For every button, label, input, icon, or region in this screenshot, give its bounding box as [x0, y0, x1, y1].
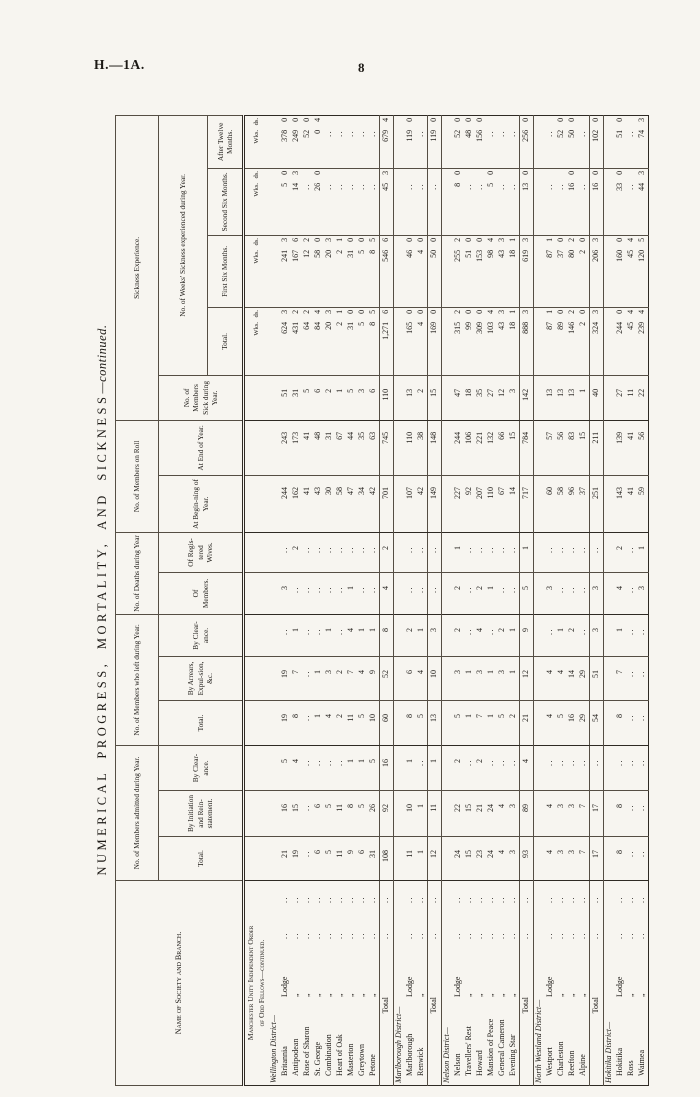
name-suffix [592, 939, 601, 997]
data-cell: 500 [567, 115, 578, 168]
lodge-row: Ross„....................414111454454...… [626, 115, 637, 1085]
data-cell: .. [637, 837, 649, 881]
header-members-sick: No. of Members Sick during Year. [159, 375, 244, 420]
data-cell: 7 [475, 700, 486, 745]
data-cell: 1205 [637, 235, 649, 307]
data-cell: .. [556, 572, 567, 614]
data-cell: 22 [637, 375, 649, 420]
data-cell: 26 [368, 791, 380, 837]
data-cell: 211 [590, 420, 604, 475]
data-cell: .. [497, 572, 508, 614]
data-cell [394, 656, 406, 700]
data-cell: 454 [626, 307, 637, 375]
data-cell: 3152 [453, 307, 464, 375]
weeks-value: 4 [417, 322, 426, 375]
lodge-name: Waimea [638, 997, 647, 1085]
weeks-value: 50 [568, 130, 577, 168]
days-value: 2 [303, 236, 312, 250]
lodge-name: Reefton [568, 997, 577, 1085]
data-cell: 19 [291, 837, 302, 881]
data-cell: 330 [615, 168, 626, 235]
data-cell: 1 [508, 656, 520, 700]
society-name-cell: Renwick„.... [416, 881, 428, 1086]
days-value: 0 [314, 169, 323, 183]
data-cell: .. [428, 168, 442, 235]
data-cell [442, 375, 454, 420]
weeks-value: 119 [430, 130, 439, 168]
days-value: 0 [465, 308, 474, 322]
data-cell: .. [368, 532, 380, 572]
data-cell: .. [637, 614, 649, 656]
data-cell: .. [335, 745, 346, 790]
data-cell: 130 [520, 168, 534, 235]
data-cell: 96 [567, 475, 578, 532]
data-cell: 12 [520, 656, 534, 700]
name-suffix [382, 939, 391, 997]
weeks-value: 324 [592, 322, 601, 375]
data-cell: 40 [416, 307, 428, 375]
days-value: 0 [347, 308, 356, 322]
days-value: 0 [592, 116, 601, 130]
data-cell: 2 [324, 375, 335, 420]
days-value: 0 [454, 169, 463, 183]
data-cell [244, 837, 270, 881]
data-cell: .. [545, 532, 556, 572]
data-cell: 227 [453, 475, 464, 532]
data-cell: 4 [545, 700, 556, 745]
data-cell: .. [626, 572, 637, 614]
days-value: 3 [325, 236, 334, 250]
days-value: 0 [557, 308, 566, 322]
data-cell: .. [416, 532, 428, 572]
data-cell: 42 [368, 475, 380, 532]
data-cell: 1 [416, 837, 428, 881]
weeks-value: 119 [406, 130, 415, 168]
data-cell: 260 [313, 168, 324, 235]
data-cell: 108 [380, 837, 394, 881]
days-value: 4 [382, 116, 391, 130]
data-cell: .. [508, 168, 520, 235]
dot-leader: .. [358, 881, 367, 903]
data-cell: 31 [368, 837, 380, 881]
days-value: ds. [253, 236, 260, 250]
data-cell: 23 [475, 837, 486, 881]
society-name-cell: North Westland District— [534, 881, 546, 1086]
data-cell: .. [302, 791, 313, 837]
data-cell [442, 532, 454, 572]
data-cell: 4 [615, 572, 626, 614]
data-cell: .. [497, 532, 508, 572]
weeks-value: 102 [592, 130, 601, 168]
data-cell: .. [508, 572, 520, 614]
data-cell: 2490 [291, 115, 302, 168]
data-cell: 310 [346, 235, 357, 307]
header-roll-end: At End of Year. [159, 420, 244, 475]
lodge-name: Travellers' Rest [465, 997, 474, 1085]
dot-leader: .. [568, 903, 577, 939]
data-cell: 745 [380, 420, 394, 475]
lodge-row: Mansion of Peace„....2424..11..1..110132… [486, 115, 497, 1085]
data-cell [604, 168, 616, 235]
data-cell: 1034 [486, 307, 497, 375]
name-suffix: „ [476, 939, 485, 997]
document-reference: H.—1A. [94, 57, 145, 73]
days-value: 0 [314, 236, 323, 250]
dot-leader: .. [476, 881, 485, 903]
weeks-value: 20 [325, 250, 334, 307]
lodge-name: Heart of Oak [336, 997, 345, 1085]
data-cell: 93 [520, 837, 534, 881]
data-cell: 433 [497, 307, 508, 375]
data-cell: .. [626, 115, 637, 168]
data-cell: 11 [626, 375, 637, 420]
data-cell: 110 [380, 375, 394, 420]
dot-leader: .. [487, 903, 496, 939]
data-cell: .. [416, 745, 428, 790]
data-cell: 149 [428, 475, 442, 532]
days-value: 0 [616, 169, 625, 183]
days-value: 5 [638, 236, 647, 250]
data-cell: 52 [380, 656, 394, 700]
data-cell [244, 614, 270, 656]
society-name-cell: Nelson District— [442, 881, 454, 1086]
data-cell [442, 791, 454, 837]
data-cell: 2560 [520, 115, 534, 168]
data-cell: 1 [346, 745, 357, 790]
data-cell [244, 700, 270, 745]
weeks-value: .. [336, 130, 345, 168]
data-cell: .. [313, 614, 324, 656]
data-cell: .. [626, 837, 637, 881]
weeks-value: .. [557, 183, 566, 235]
days-value: 0 [476, 116, 485, 130]
data-cell: .. [590, 532, 604, 572]
data-cell: 460 [405, 235, 416, 307]
data-cell: .. [335, 532, 346, 572]
data-cell [604, 420, 616, 475]
data-cell: 1 [578, 375, 590, 420]
data-cell: 243 [280, 420, 291, 475]
data-cell: 15 [464, 791, 475, 837]
dot-leader: .. [369, 903, 378, 939]
days-value: 2 [303, 308, 312, 322]
days-value: 3 [638, 116, 647, 130]
header-left-clearance: By Clear-ance. [159, 614, 244, 656]
dot-leader: .. [430, 903, 439, 939]
weeks-value: 50 [430, 250, 439, 307]
days-value: 0 [476, 308, 485, 322]
society-name-cell: WestportLodge.... [545, 881, 556, 1086]
weeks-value: 206 [592, 250, 601, 307]
data-cell: .. [428, 572, 442, 614]
data-cell: 4 [556, 656, 567, 700]
days-value: 0 [281, 169, 290, 183]
dot-leader: .. [487, 881, 496, 903]
dot-leader: .. [417, 903, 426, 939]
data-cell: .. [626, 745, 637, 790]
data-cell: 642 [302, 307, 313, 375]
weeks-value: 51 [616, 130, 625, 168]
header-group-deaths: No. of Deaths during Year [116, 532, 159, 614]
data-cell: 1462 [567, 307, 578, 375]
data-cell: 2 [380, 532, 394, 572]
data-cell: 2 [335, 656, 346, 700]
data-cell: 47 [453, 375, 464, 420]
data-cell: 8 [291, 700, 302, 745]
lodge-row: Alpine„....77..2929......371512020.... [578, 115, 590, 1085]
days-value: 3 [292, 169, 301, 183]
name-suffix: „ [314, 939, 323, 997]
data-cell: 2 [508, 700, 520, 745]
data-cell: 50 [357, 307, 368, 375]
data-cell: 3 [357, 375, 368, 420]
lodge-row: Masterton„....98111741..47445310310.... [346, 115, 357, 1085]
data-cell: 16 [380, 745, 394, 790]
days-value: 4 [314, 116, 323, 130]
district-heading-row: North Westland District— [534, 115, 546, 1085]
name-suffix: „ [509, 939, 518, 997]
header-sickness-after-twelve: After Twelve Months. [208, 115, 244, 168]
lodge-name: Britannia [281, 997, 290, 1085]
data-cell [604, 791, 616, 837]
dot-leader: .. [417, 881, 426, 903]
data-cell: .. [486, 745, 497, 790]
data-cell: 8 [615, 700, 626, 745]
society-name-cell: Marlborough District— [394, 881, 406, 1086]
data-cell: 1 [357, 614, 368, 656]
weeks-value: 52 [303, 130, 312, 168]
data-cell: 2 [567, 614, 578, 656]
data-cell [534, 745, 546, 790]
days-value: 0 [568, 169, 577, 183]
data-cell: 1 [486, 656, 497, 700]
data-cell: .. [464, 614, 475, 656]
society-name-cell: HokitikaLodge.... [615, 881, 626, 1086]
lodge-name: St. George [314, 997, 323, 1085]
weeks-value: 5 [358, 250, 367, 307]
data-cell: 3 [497, 656, 508, 700]
data-cell: 3 [508, 791, 520, 837]
data-cell: 17 [590, 791, 604, 837]
data-cell: 207 [475, 475, 486, 532]
data-cell: .. [416, 572, 428, 614]
data-cell: 1650 [405, 307, 416, 375]
dot-leader: .. [430, 881, 439, 903]
days-value: 0 [465, 116, 474, 130]
dot-leader: .. [592, 881, 601, 903]
data-cell: .. [578, 115, 590, 168]
days-value: ds. [253, 308, 260, 322]
data-cell: 5 [416, 700, 428, 745]
data-cell: .. [313, 745, 324, 790]
data-cell: 92 [464, 475, 475, 532]
data-cell: 5 [324, 837, 335, 881]
data-cell: 34 [357, 475, 368, 532]
data-cell: 1 [416, 791, 428, 837]
data-cell: 160 [590, 168, 604, 235]
data-cell [244, 572, 270, 614]
data-cell [534, 115, 546, 168]
data-cell: 221 [475, 420, 486, 475]
dot-leader: .. [406, 881, 415, 903]
data-cell: 802 [567, 235, 578, 307]
days-value: 3 [522, 236, 531, 250]
weeks-value: 255 [454, 250, 463, 307]
society-name-cell: Hokitika District— [604, 881, 616, 1086]
society-name-cell: Heart of Oak„.... [335, 881, 346, 1086]
dot-leader: .. [557, 903, 566, 939]
data-cell: 990 [464, 307, 475, 375]
data-cell: .. [335, 614, 346, 656]
data-cell: 6 [357, 837, 368, 881]
dot-leader: .. [465, 903, 474, 939]
header-admitted-initiation: By Initiation and Rein-statement. [159, 791, 244, 837]
data-cell [269, 307, 280, 375]
dot-leader: .. [627, 881, 636, 903]
data-cell: 20 [578, 307, 590, 375]
district-total-row: Total....108921660528427017451101,271654… [380, 115, 394, 1085]
data-cell: 13 [556, 375, 567, 420]
data-cell [534, 307, 546, 375]
data-cell [442, 420, 454, 475]
weeks-value: .. [369, 130, 378, 168]
society-name-cell: Rose of Sharon„.... [302, 881, 313, 1086]
weeks-value: 87 [546, 322, 555, 375]
days-value: 0 [430, 116, 439, 130]
data-cell: 13 [428, 700, 442, 745]
dot-leader: .. [509, 903, 518, 939]
data-cell: 80 [453, 168, 464, 235]
weeks-value: .. [627, 183, 636, 235]
header-sickness-first-six: First Six Months. [208, 235, 244, 307]
data-cell: 139 [615, 420, 626, 475]
data-cell: 871 [545, 235, 556, 307]
data-cell: 13 [567, 375, 578, 420]
data-cell: .. [291, 572, 302, 614]
dot-leader: .. [382, 903, 391, 939]
days-value: 2 [454, 236, 463, 250]
days-value: 0 [430, 308, 439, 322]
lodge-row: St. George„....66..11......4348684458026… [313, 115, 324, 1085]
data-cell: 9 [520, 614, 534, 656]
days-value: 2 [568, 236, 577, 250]
data-cell: 3 [475, 656, 486, 700]
data-cell: 66 [497, 420, 508, 475]
weeks-value: 5 [281, 183, 290, 235]
data-cell: 3 [508, 375, 520, 420]
data-cell: 110 [405, 420, 416, 475]
data-cell: 57 [545, 420, 556, 475]
weeks-value: 2 [336, 322, 345, 375]
header-group-roll: No. of Members on Roll [116, 420, 159, 532]
data-cell: 5 [280, 745, 291, 790]
data-cell: 7 [291, 656, 302, 700]
district-total-row: Total....1211113103....149148151690500..… [428, 115, 442, 1085]
weeks-value: 18 [509, 322, 518, 375]
dot-leader: .. [347, 881, 356, 903]
data-cell: 107 [405, 475, 416, 532]
data-cell [394, 235, 406, 307]
data-cell: 251 [590, 475, 604, 532]
data-cell: 2394 [637, 307, 649, 375]
dot-leader: .. [616, 903, 625, 939]
data-cell: .. [335, 168, 346, 235]
data-cell: Wks.ds. [244, 168, 270, 235]
weeks-value: .. [509, 183, 518, 235]
weeks-value: .. [406, 183, 415, 235]
data-cell: .. [302, 572, 313, 614]
days-value: 0 [303, 116, 312, 130]
data-cell [394, 837, 406, 881]
data-cell: 22 [453, 791, 464, 837]
data-cell: 203 [324, 307, 335, 375]
data-cell [244, 375, 270, 420]
data-cell: 1 [368, 614, 380, 656]
data-cell: 2 [615, 532, 626, 572]
order-heading-line2: of Odd Fellows—continued. [257, 881, 268, 1085]
data-cell: .. [302, 837, 313, 881]
data-cell [604, 837, 616, 881]
dot-leader: .. [579, 881, 588, 903]
society-name-cell: Antipodean„.... [291, 881, 302, 1086]
days-value: 0 [358, 236, 367, 250]
data-cell: 3 [556, 791, 567, 837]
weeks-value: .. [498, 183, 507, 235]
lodge-row: Reefton„....33..16142....968313146280216… [567, 115, 578, 1085]
data-cell: 1 [428, 745, 442, 790]
data-cell [269, 475, 280, 532]
district-total-row: Total....1717..545133..25121140324320631… [590, 115, 604, 1085]
district-heading-row: Hokitika District— [604, 115, 616, 1085]
days-value: 3 [498, 236, 507, 250]
data-cell [442, 614, 454, 656]
data-cell [394, 375, 406, 420]
weeks-value: 51 [465, 250, 474, 307]
weeks-value: .. [358, 130, 367, 168]
dot-leader: .. [579, 903, 588, 939]
name-suffix [522, 939, 531, 997]
days-value: 1 [336, 236, 345, 250]
dot-leader: .. [522, 903, 531, 939]
data-cell: 4 [357, 656, 368, 700]
lodge-row: MarlboroughLodge....11101862....10711013… [405, 115, 416, 1085]
data-cell: 10 [405, 791, 416, 837]
days-value: 1 [546, 308, 555, 322]
data-cell: 40 [590, 375, 604, 420]
weeks-value: Wks. [253, 250, 260, 307]
data-cell: .. [578, 745, 590, 790]
data-cell: .. [405, 572, 416, 614]
data-cell [534, 532, 546, 572]
data-cell: 3 [428, 614, 442, 656]
data-cell: 27 [486, 375, 497, 420]
dot-leader: .. [303, 903, 312, 939]
society-name-cell: Manchester Unity Independent Orderof Odd… [244, 881, 270, 1086]
data-cell: 3 [637, 572, 649, 614]
weeks-value: 44 [638, 183, 647, 235]
data-cell: 1 [291, 614, 302, 656]
data-cell: 10 [368, 700, 380, 745]
weeks-value: 48 [465, 130, 474, 168]
data-cell: .. [637, 745, 649, 790]
header-deaths-wives: Of Regis-tered Wives. [159, 532, 244, 572]
data-cell: 143 [291, 168, 302, 235]
data-cell: 3 [508, 837, 520, 881]
data-cell [269, 656, 280, 700]
data-cell [394, 475, 406, 532]
data-cell: 15 [428, 375, 442, 420]
data-cell: 181 [508, 235, 520, 307]
